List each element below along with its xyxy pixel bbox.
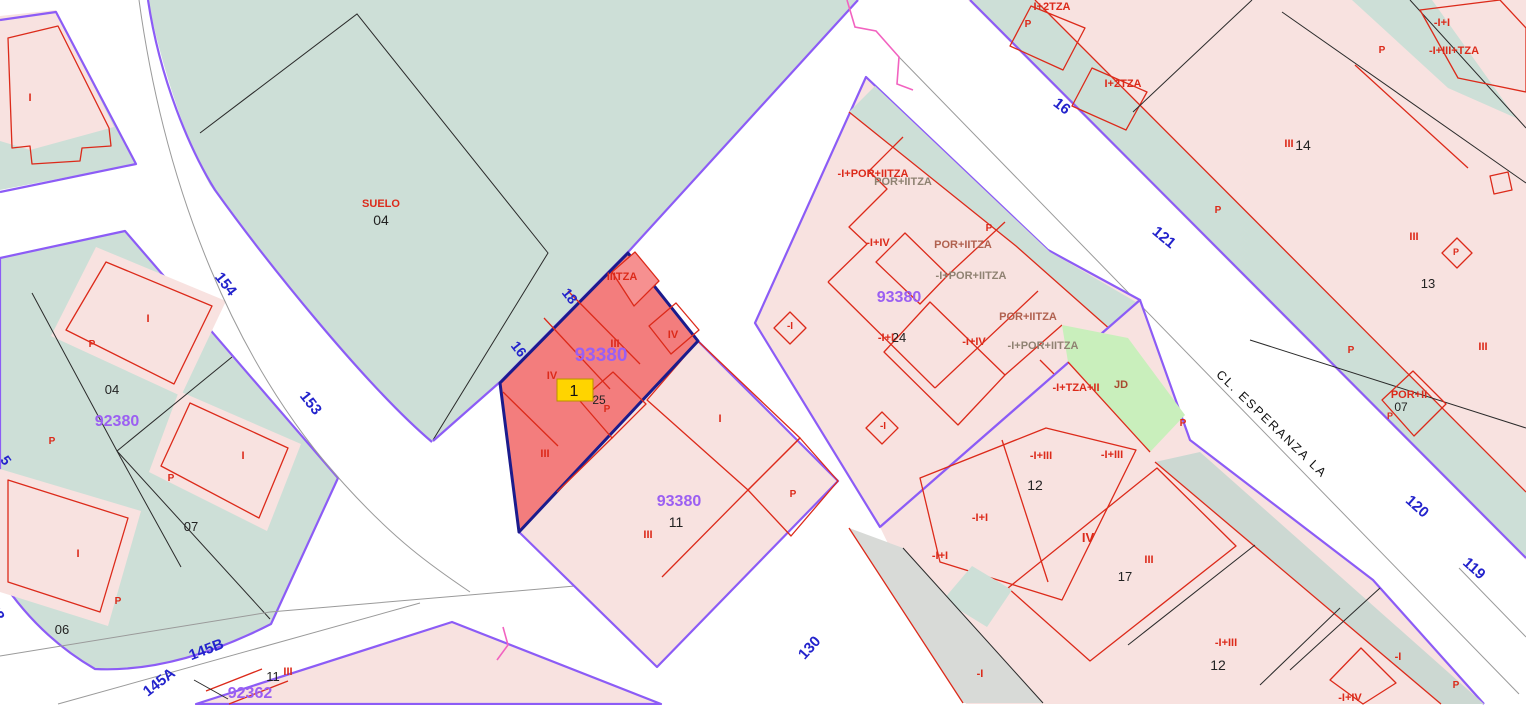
floors-label: -I+III — [1030, 450, 1052, 462]
floors-label: POR+II — [1391, 389, 1427, 401]
patio-label: P — [1453, 247, 1459, 257]
floors-label: -I+POR+IITZA — [1008, 340, 1079, 352]
floors-label: -I+III — [1101, 449, 1123, 461]
block-id: 93380 — [877, 289, 922, 306]
floors-label: POR+IITZA — [934, 239, 992, 251]
floors-label: -I+III — [1215, 637, 1237, 649]
floors-label: I+2TZA — [1105, 78, 1142, 90]
block-id: 92362 — [228, 685, 273, 702]
floors-label: I — [76, 548, 79, 560]
floors-label: III — [540, 448, 549, 460]
floors-label: -I+I — [932, 550, 948, 562]
parcel-number: 06 — [55, 622, 69, 637]
cadastral-map-viewport[interactable]: 1541531525145B145A1816161211201191309338… — [0, 0, 1526, 705]
patio-label: P — [1215, 205, 1222, 216]
floors-label: -I+I — [972, 512, 988, 524]
street-number: 154 — [211, 269, 240, 300]
floors-label: I — [146, 313, 149, 325]
parcel-number: 12 — [1027, 477, 1043, 493]
patio-label: P — [168, 473, 175, 484]
patio-label: P — [1348, 345, 1355, 356]
cadastral-map[interactable]: 1541531525145B145A1816161211201191309338… — [0, 0, 1526, 705]
patio-label: P — [89, 339, 96, 350]
floors-label: IV — [668, 329, 679, 341]
floors-label: POR+IITZA — [874, 176, 932, 188]
garden-label: JD — [1114, 379, 1128, 391]
floors-label: IV — [547, 370, 558, 382]
street-number: 120 — [1402, 492, 1432, 521]
floors-label: -I+I — [878, 332, 894, 344]
floors-label: III — [610, 338, 619, 350]
floors-label: III — [643, 529, 652, 541]
patio-label: P — [1453, 680, 1460, 691]
floors-label: III — [1409, 231, 1418, 243]
floors-label: -I+I — [1434, 17, 1450, 29]
floors-label: I — [718, 413, 721, 425]
patio-label: P — [1387, 411, 1393, 421]
street-number: 153 — [296, 388, 325, 418]
parcel-number: 07 — [184, 519, 198, 534]
utility-line — [847, 0, 913, 90]
floors-label: -I+III+TZA — [1429, 45, 1479, 57]
floors-label: III — [1478, 341, 1487, 353]
floors-label: -I+POR+IITZA — [936, 270, 1007, 282]
street-number: 145A — [140, 665, 179, 701]
parcel-number: 04 — [373, 212, 389, 228]
block-92380 — [0, 231, 338, 669]
floors-label: -I+IV — [962, 336, 986, 348]
block-id: 92380 — [95, 413, 140, 430]
marker-number: 1 — [570, 383, 579, 400]
park-block — [148, 0, 858, 442]
parcel-number: 04 — [105, 382, 119, 397]
patio-label: P — [986, 223, 993, 234]
floors-label: III — [283, 666, 292, 678]
floors-label: -I+IV — [866, 237, 890, 249]
floors-label: I+2TZA — [1034, 1, 1071, 13]
floors-label: I — [28, 92, 31, 104]
top-left-block — [0, 10, 136, 192]
parcel-number: 12 — [1210, 657, 1226, 673]
street-number: 121 — [1149, 223, 1179, 252]
block-id: 93380 — [657, 493, 702, 510]
parcel-number: 14 — [1295, 137, 1311, 153]
street-name: CL. ESPERANZA LA — [1213, 367, 1330, 480]
parcel-number: 11 — [266, 669, 280, 684]
floors-label: -I — [1395, 651, 1402, 663]
patio-label: P — [1180, 418, 1187, 429]
parcel-number: 17 — [1118, 569, 1132, 584]
floors-label: III — [1144, 554, 1153, 566]
floors-label: -I — [787, 321, 793, 332]
floors-label: -I — [977, 668, 984, 680]
floors-label: IIITZA — [607, 271, 638, 283]
street-number: 152 — [0, 594, 8, 624]
floors-label: IV — [1082, 530, 1095, 545]
floors-label: -I+TZA+II — [1052, 382, 1099, 394]
street-number: 130 — [795, 633, 824, 663]
floors-label: POR+IITZA — [999, 311, 1057, 323]
parcel-number: 11 — [669, 514, 684, 530]
parcel-number: 07 — [1394, 400, 1408, 414]
patio-label: P — [790, 489, 797, 500]
patio-label: P — [604, 404, 611, 415]
patio-label: P — [49, 436, 56, 447]
street-number: 119 — [1459, 554, 1488, 583]
patio-label: P — [1025, 19, 1032, 30]
land-label: SUELO — [362, 198, 400, 210]
floors-label: -I+IV — [1338, 692, 1362, 704]
patio-label: P — [115, 596, 122, 607]
floors-label: III — [1284, 138, 1293, 150]
floors-label: I — [241, 450, 244, 462]
patio-label: P — [1379, 45, 1386, 56]
selected-parcel-marker[interactable]: 1 — [557, 379, 593, 401]
floors-label: -I — [880, 421, 886, 432]
parcel-number: 13 — [1421, 276, 1435, 291]
